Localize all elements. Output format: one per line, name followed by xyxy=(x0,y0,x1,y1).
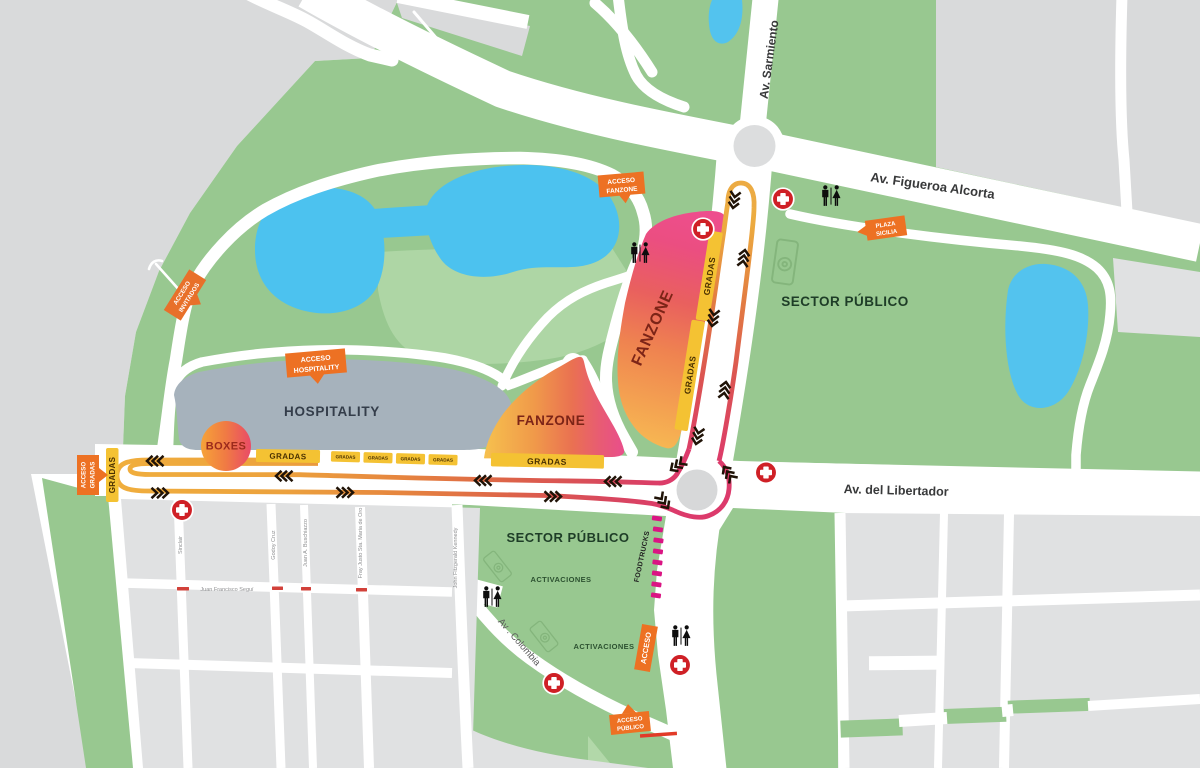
svg-text:SECTOR PÚBLICO: SECTOR PÚBLICO xyxy=(781,294,909,309)
svg-text:SECTOR PÚBLICO: SECTOR PÚBLICO xyxy=(506,530,629,545)
svg-text:GRADAS: GRADAS xyxy=(90,462,97,489)
svg-text:John Fitzgerald Kennedy: John Fitzgerald Kennedy xyxy=(453,527,459,588)
svg-text:GRADAS: GRADAS xyxy=(400,456,420,462)
svg-text:Godoy Cruz: Godoy Cruz xyxy=(271,530,277,560)
svg-text:GRADAS: GRADAS xyxy=(108,456,117,493)
svg-text:HOSPITALITY: HOSPITALITY xyxy=(284,404,380,419)
svg-text:GRADAS: GRADAS xyxy=(335,454,355,460)
svg-text:FANZONE: FANZONE xyxy=(517,413,586,428)
svg-text:GRADAS: GRADAS xyxy=(368,455,388,461)
svg-text:Juan A. Buschiazzo: Juan A. Buschiazzo xyxy=(303,519,309,567)
svg-text:ACCESO: ACCESO xyxy=(81,462,88,489)
svg-text:Av. del Libertador: Av. del Libertador xyxy=(844,482,949,499)
svg-text:GRADAS: GRADAS xyxy=(433,457,453,463)
svg-text:Sinclair: Sinclair xyxy=(178,536,184,554)
svg-text:ACTIVACIONES: ACTIVACIONES xyxy=(531,575,592,584)
svg-text:ACTIVACIONES: ACTIVACIONES xyxy=(574,642,635,651)
svg-text:Fray Justo Sta. Maria de Oro: Fray Justo Sta. Maria de Oro xyxy=(358,508,364,579)
svg-text:BOXES: BOXES xyxy=(206,441,247,453)
svg-text:GRADAS: GRADAS xyxy=(269,452,306,462)
svg-text:GRADAS: GRADAS xyxy=(527,456,567,467)
svg-text:Juan Francisco Seguí: Juan Francisco Seguí xyxy=(200,587,254,593)
